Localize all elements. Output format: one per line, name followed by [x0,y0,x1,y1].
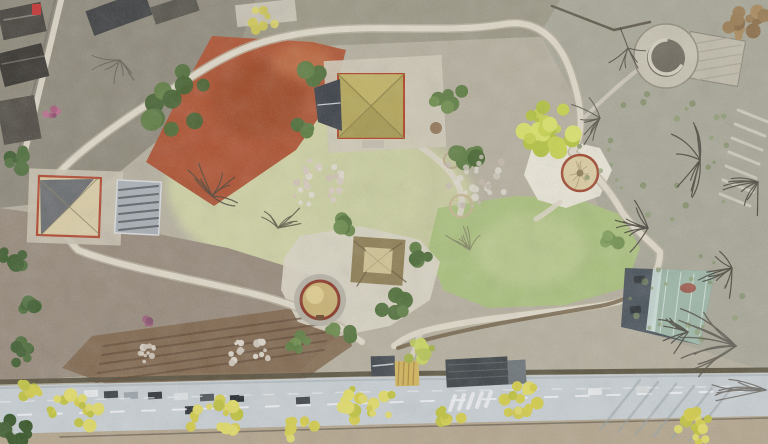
scene-canvas [0,0,768,444]
texture-fine [0,0,768,444]
aerial-park-photo [0,0,768,444]
